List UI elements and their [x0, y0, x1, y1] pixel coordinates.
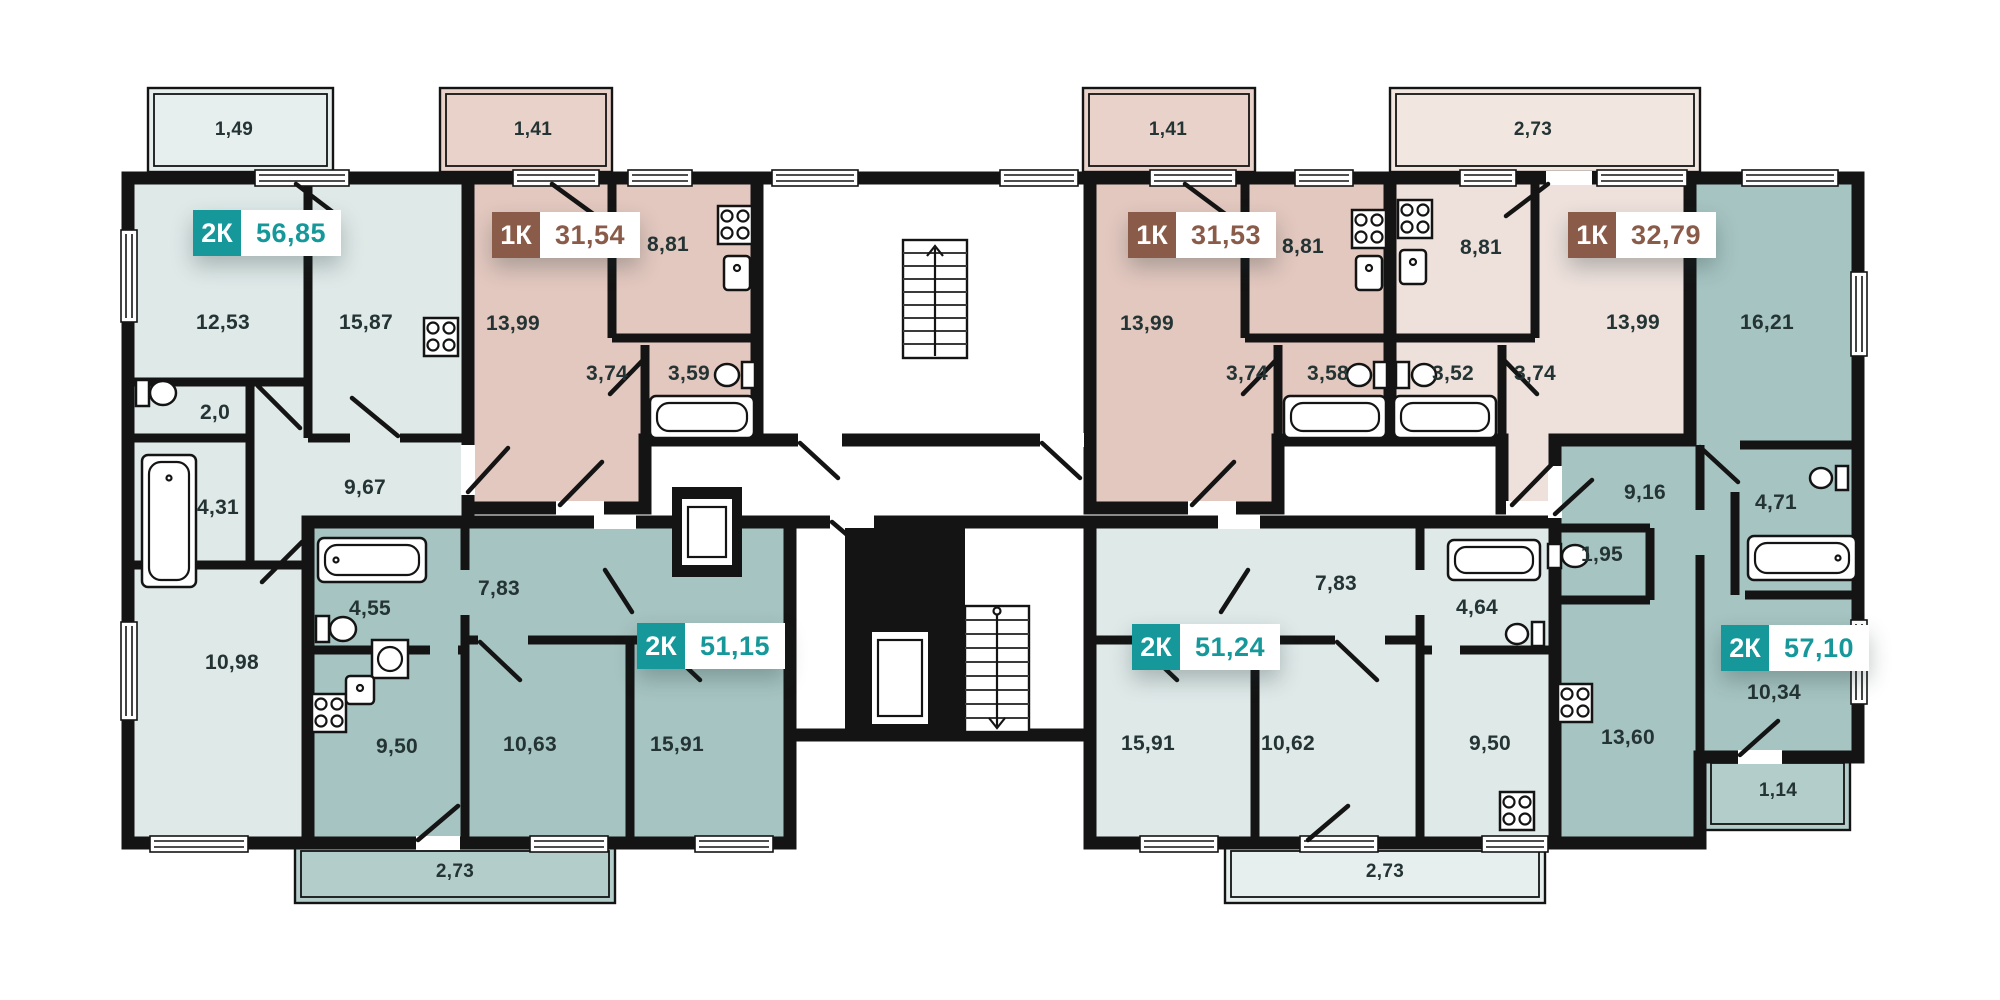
- apartment-type-label: 2К: [1132, 624, 1180, 670]
- sink-icon: [1356, 256, 1382, 290]
- apartment-type-label: 2К: [1721, 625, 1769, 671]
- apartment-type-label: 1К: [1568, 212, 1616, 258]
- sink-icon: [724, 256, 750, 290]
- apartment-badge[interactable]: 1К31,54: [492, 212, 640, 258]
- toilet-icon: [1396, 362, 1409, 388]
- apartment-type-label: 1К: [492, 212, 540, 258]
- apartment-area-value: 57,10: [1769, 625, 1869, 671]
- stove-icon: [1500, 792, 1534, 830]
- floor-plan-graphic: [0, 0, 2000, 1000]
- balcony-region: [1390, 88, 1700, 172]
- toilet-icon: [1836, 466, 1848, 490]
- stove-icon: [312, 694, 346, 732]
- floor-plan-page: 12,5315,872,04,319,6710,982К56,8513,998,…: [0, 0, 2000, 1000]
- stove-icon: [718, 206, 752, 244]
- apartment-badge[interactable]: 2К57,10: [1721, 625, 1869, 671]
- apartment-area-value: 32,79: [1616, 212, 1716, 258]
- apartment-type-label: 2К: [193, 210, 241, 256]
- apartment-type-label: 2К: [637, 623, 685, 669]
- balcony-region: [440, 88, 612, 172]
- balcony-region: [1083, 88, 1255, 172]
- toilet-icon: [1548, 544, 1561, 568]
- toilet-icon: [1374, 362, 1387, 388]
- apartment-badge[interactable]: 2К51,15: [637, 623, 785, 669]
- toilet-icon: [742, 362, 755, 388]
- apartment-area-value: 31,53: [1176, 212, 1276, 258]
- balcony-region: [148, 88, 333, 172]
- balcony-region: [1705, 757, 1850, 830]
- toilet-icon: [316, 616, 329, 642]
- toilet-icon: [136, 380, 149, 406]
- stove-icon: [1398, 200, 1432, 238]
- apartments: [128, 178, 1858, 843]
- apartment-badge[interactable]: 2К51,24: [1132, 624, 1280, 670]
- balcony-region: [295, 845, 615, 903]
- apartment-badge[interactable]: 1К31,53: [1128, 212, 1276, 258]
- apartment-area-value: 31,54: [540, 212, 640, 258]
- stove-icon: [424, 318, 458, 356]
- stairs-up: [903, 240, 967, 358]
- washer-icon: [372, 640, 408, 678]
- sink-icon: [346, 676, 374, 704]
- stove-icon: [1558, 684, 1592, 722]
- balcony-region: [1225, 845, 1545, 903]
- apartment-type-label: 1К: [1128, 212, 1176, 258]
- apartment-area-value: 56,85: [241, 210, 341, 256]
- apartment-area-value: 51,15: [685, 623, 785, 669]
- toilet-icon: [1532, 622, 1544, 646]
- apartment-badge[interactable]: 2К56,85: [193, 210, 341, 256]
- sink-icon: [1400, 250, 1426, 284]
- apartment-area-value: 51,24: [1180, 624, 1280, 670]
- stairs-down: [965, 606, 1029, 732]
- stove-icon: [1352, 210, 1386, 248]
- apartment-badge[interactable]: 1К32,79: [1568, 212, 1716, 258]
